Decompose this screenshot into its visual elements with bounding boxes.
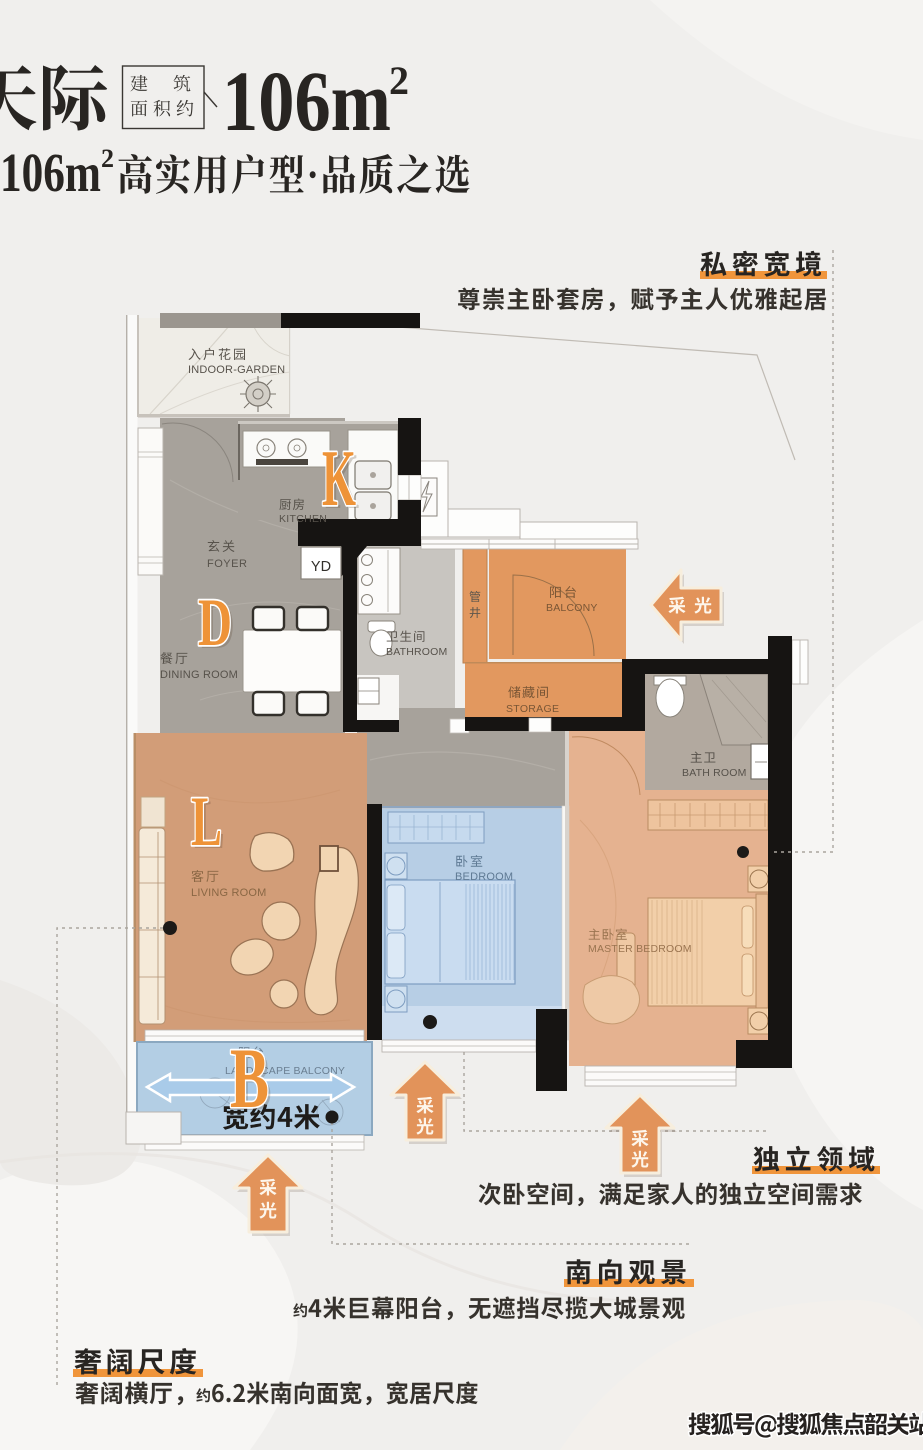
svg-text:BEDROOM: BEDROOM <box>455 871 513 883</box>
svg-text:106m: 106m <box>0 142 101 203</box>
svg-text:MASTER BEDROOM: MASTER BEDROOM <box>588 943 692 955</box>
svg-text:STORAGE: STORAGE <box>506 703 559 715</box>
svg-text:K: K <box>322 435 356 523</box>
svg-text:LIVING ROOM: LIVING ROOM <box>191 887 267 899</box>
svg-text:B: B <box>230 1030 269 1126</box>
svg-text:L: L <box>191 783 222 861</box>
svg-text:D: D <box>198 584 232 660</box>
svg-text:2: 2 <box>389 58 409 103</box>
svg-text:YD: YD <box>311 559 331 575</box>
svg-text:FOYER: FOYER <box>207 558 247 570</box>
svg-text:106m: 106m <box>222 53 391 149</box>
svg-text:BATHROOM: BATHROOM <box>386 646 448 658</box>
svg-text:DINING ROOM: DINING ROOM <box>160 669 238 681</box>
svg-text:KITCHEN: KITCHEN <box>279 513 327 525</box>
svg-text:INDOOR-GARDEN: INDOOR-GARDEN <box>188 364 285 376</box>
svg-text:2: 2 <box>101 144 114 173</box>
svg-text:BATH ROOM: BATH ROOM <box>682 767 747 779</box>
svg-text:BALCONY: BALCONY <box>546 602 598 614</box>
